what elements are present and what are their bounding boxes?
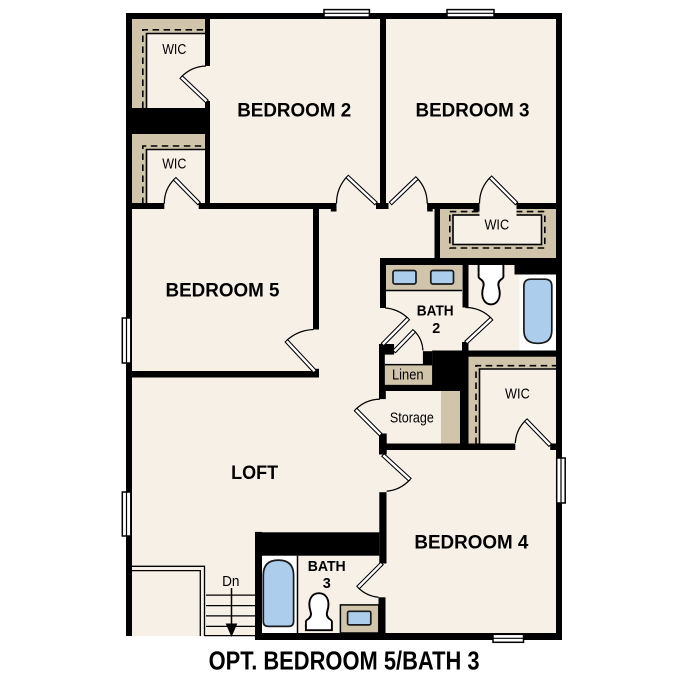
svg-text:OPT. BEDROOM 5/BATH 3: OPT. BEDROOM 5/BATH 3 [209,646,480,676]
svg-text:BEDROOM 5: BEDROOM 5 [166,281,280,302]
svg-text:WIC: WIC [162,41,186,58]
svg-text:Storage: Storage [390,410,434,427]
svg-text:3: 3 [323,576,331,592]
svg-text:BATH: BATH [417,304,454,320]
svg-text:BATH: BATH [308,559,346,575]
svg-text:Linen: Linen [392,367,424,384]
svg-text:BEDROOM 4: BEDROOM 4 [414,533,528,554]
svg-text:Dn: Dn [222,573,239,590]
svg-text:WIC: WIC [162,155,186,172]
svg-text:WIC: WIC [505,385,530,402]
svg-text:BEDROOM 2: BEDROOM 2 [237,101,351,122]
svg-text:BEDROOM 3: BEDROOM 3 [416,101,530,122]
svg-text:WIC: WIC [484,217,509,234]
svg-text:2: 2 [432,321,440,337]
svg-text:LOFT: LOFT [231,463,278,484]
